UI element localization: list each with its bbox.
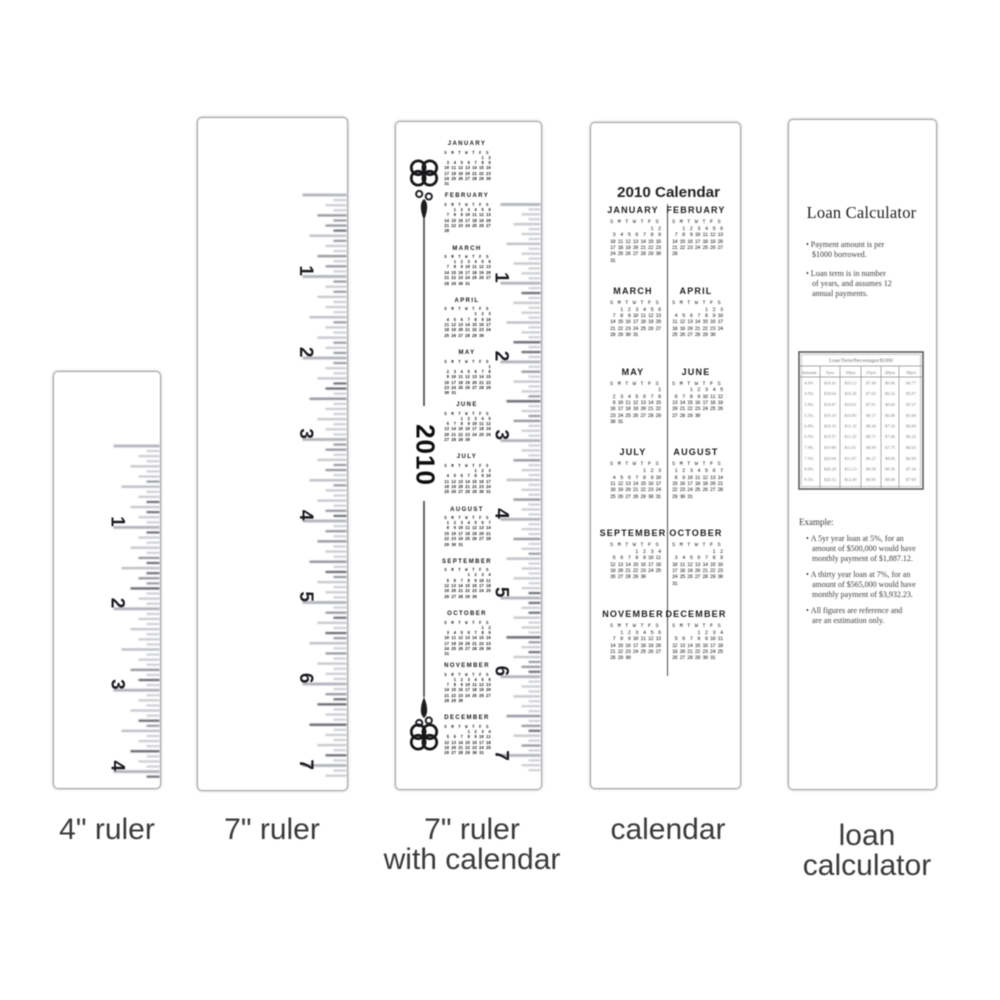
- svg-text:3: 3: [491, 430, 512, 441]
- svg-text:$11.10: $11.10: [845, 424, 858, 429]
- svg-text:30yrs: 30yrs: [906, 370, 916, 375]
- svg-text:$7.40: $7.40: [866, 381, 877, 386]
- svg-text:3: 3: [295, 428, 316, 439]
- svg-text:4.0%: 4.0%: [804, 381, 813, 386]
- svg-text:1: 1: [491, 272, 512, 283]
- svg-text:6: 6: [295, 673, 316, 684]
- svg-text:$12.13: $12.13: [844, 467, 857, 472]
- svg-text:5.5%: 5.5%: [804, 413, 813, 418]
- svg-text:$7.34: $7.34: [906, 467, 917, 472]
- svg-text:$5.37: $5.37: [906, 402, 917, 407]
- svg-text:4: 4: [106, 761, 127, 772]
- svg-text:$8.44: $8.44: [866, 424, 877, 429]
- svg-text:$8.68: $8.68: [885, 477, 896, 482]
- svg-text:Loan/Term/Percentages/$1000: Loan/Term/Percentages/$1000: [829, 357, 893, 364]
- svg-text:$9.85: $9.85: [866, 477, 877, 482]
- svg-text:$18.64: $18.64: [824, 391, 837, 396]
- svg-text:$7.16: $7.16: [885, 424, 896, 429]
- svg-text:20yrs: 20yrs: [885, 370, 895, 375]
- svg-text:$10.85: $10.85: [844, 413, 857, 418]
- svg-text:$19.10: $19.10: [824, 413, 837, 418]
- svg-text:$11.87: $11.87: [845, 456, 858, 461]
- svg-text:$6.32: $6.32: [906, 434, 916, 439]
- svg-text:$19.80: $19.80: [824, 445, 837, 450]
- svg-text:$10.36: $10.36: [844, 391, 857, 396]
- svg-text:10yrs: 10yrs: [845, 370, 855, 375]
- svg-text:4: 4: [491, 508, 512, 519]
- svg-text:$7.46: $7.46: [885, 434, 896, 439]
- svg-text:$19.33: $19.33: [824, 424, 837, 429]
- svg-text:$7.75: $7.75: [885, 445, 896, 450]
- svg-text:Amount: Amount: [801, 370, 817, 375]
- svg-text:7: 7: [295, 759, 316, 770]
- svg-text:$7.69: $7.69: [906, 477, 917, 482]
- svg-text:5.0%: 5.0%: [804, 402, 813, 407]
- svg-text:2: 2: [491, 351, 512, 362]
- svg-text:7.0%: 7.0%: [804, 445, 813, 450]
- svg-text:8.5%: 8.5%: [804, 477, 813, 482]
- svg-text:$6.06: $6.06: [885, 381, 896, 386]
- svg-text:$8.06: $8.06: [885, 456, 896, 461]
- svg-text:2: 2: [106, 598, 127, 609]
- svg-text:$7.65: $7.65: [866, 391, 877, 396]
- svg-text:$4.77: $4.77: [906, 381, 917, 386]
- svg-text:5: 5: [491, 587, 512, 598]
- svg-text:15yrs: 15yrs: [866, 370, 876, 375]
- svg-text:$9.27: $9.27: [866, 456, 877, 461]
- svg-text:$20.28: $20.28: [824, 467, 837, 472]
- svg-text:$10.12: $10.12: [844, 381, 856, 386]
- svg-text:1: 1: [106, 516, 127, 527]
- svg-text:$9.56: $9.56: [866, 467, 877, 472]
- svg-text:5yrs: 5yrs: [826, 370, 834, 375]
- svg-text:1: 1: [295, 265, 316, 276]
- svg-text:$11.35: $11.35: [845, 434, 858, 439]
- svg-text:$6.33: $6.33: [885, 391, 896, 396]
- svg-text:$7.91: $7.91: [866, 402, 876, 407]
- svg-text:$18.41: $18.41: [824, 381, 836, 386]
- svg-text:$10.61: $10.61: [844, 402, 856, 407]
- svg-text:4.5%: 4.5%: [804, 391, 813, 396]
- svg-text:$8.99: $8.99: [866, 445, 877, 450]
- svg-text:$6.00: $6.00: [906, 424, 917, 429]
- svg-text:$20.04: $20.04: [824, 456, 837, 461]
- svg-text:$5.07: $5.07: [906, 391, 917, 396]
- svg-text:$19.57: $19.57: [824, 434, 837, 439]
- svg-text:$6.88: $6.88: [885, 413, 896, 418]
- svg-text:$6.65: $6.65: [906, 445, 917, 450]
- svg-text:$20.52: $20.52: [824, 477, 836, 482]
- svg-text:$18.87: $18.87: [824, 402, 837, 407]
- svg-text:6: 6: [491, 666, 512, 677]
- svg-text:6.5%: 6.5%: [804, 434, 813, 439]
- svg-text:2: 2: [295, 347, 316, 358]
- svg-text:4: 4: [295, 510, 316, 521]
- svg-text:$8.36: $8.36: [885, 467, 896, 472]
- svg-text:7.5%: 7.5%: [804, 456, 813, 461]
- svg-text:$8.71: $8.71: [866, 434, 876, 439]
- svg-text:$11.61: $11.61: [845, 445, 857, 450]
- svg-text:3: 3: [106, 679, 127, 690]
- svg-text:$5.68: $5.68: [906, 413, 917, 418]
- svg-text:$6.60: $6.60: [885, 402, 896, 407]
- svg-text:6.0%: 6.0%: [804, 424, 813, 429]
- svg-text:$8.17: $8.17: [866, 413, 877, 418]
- svg-text:8.0%: 8.0%: [804, 467, 813, 472]
- svg-text:7: 7: [491, 750, 512, 761]
- svg-text:$12.40: $12.40: [844, 477, 857, 482]
- svg-text:$6.99: $6.99: [906, 456, 917, 461]
- svg-text:5: 5: [295, 591, 316, 602]
